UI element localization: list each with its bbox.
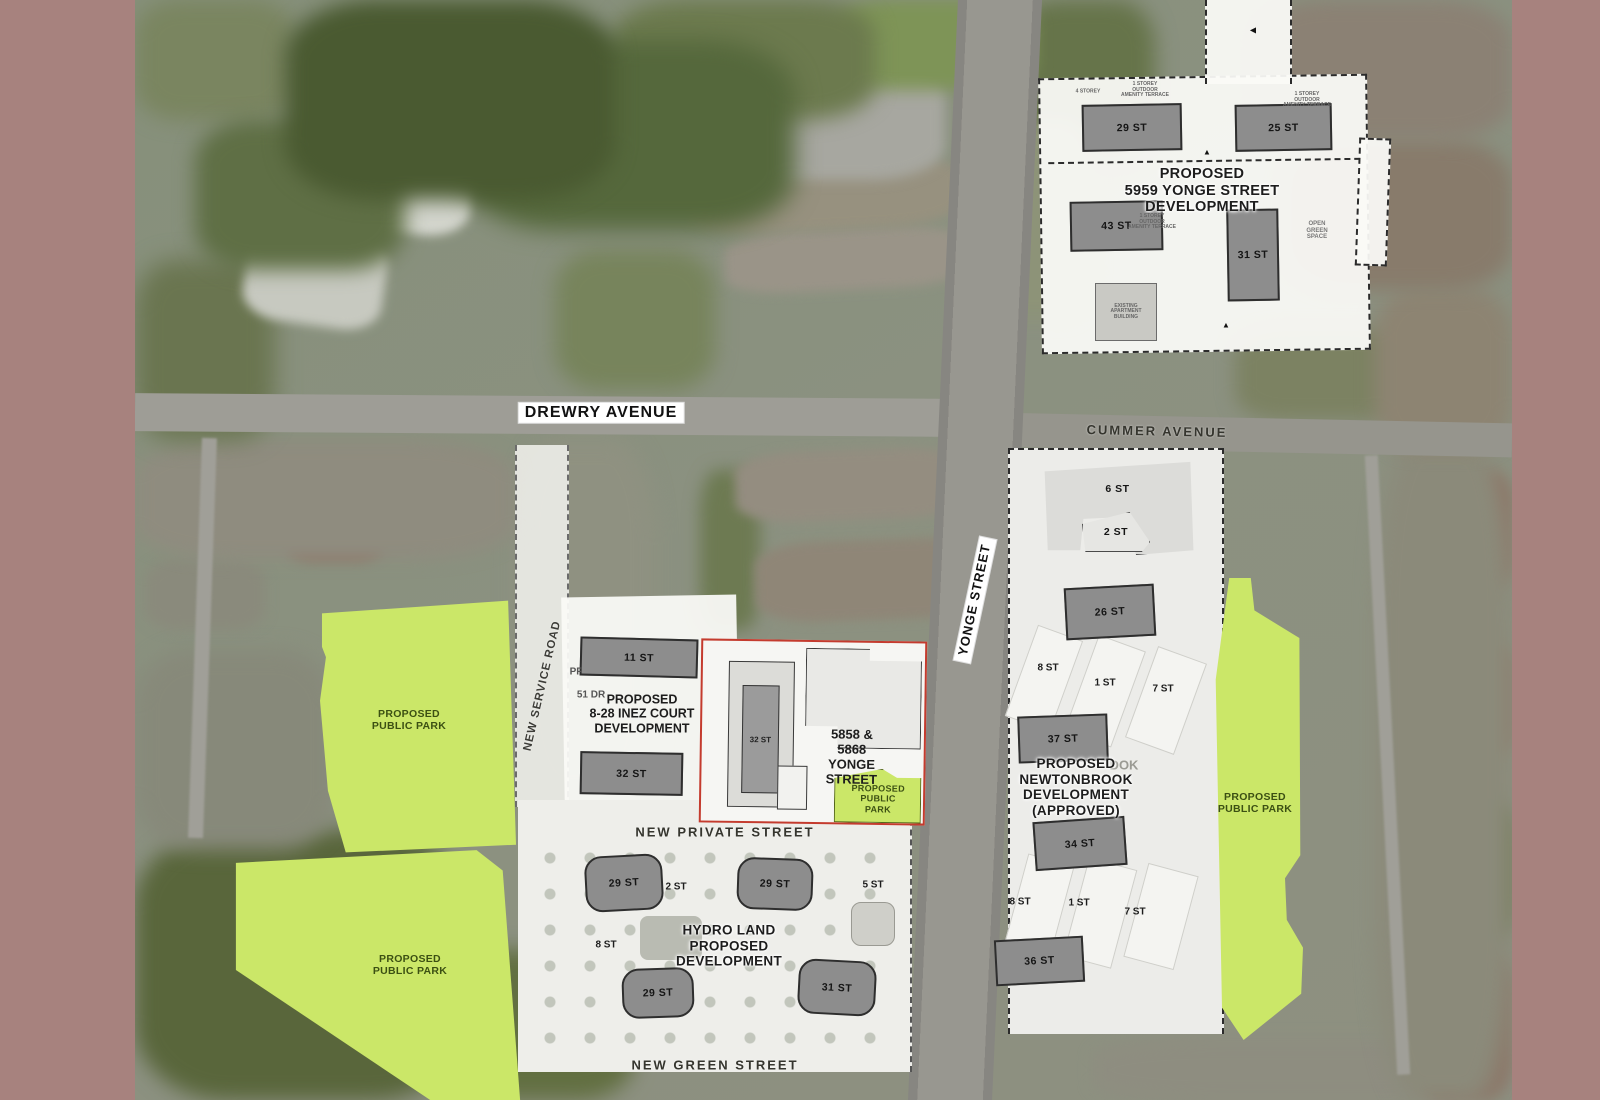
partial-label-51dr: 51 DR	[577, 689, 605, 701]
new-private-street-label: NEW PRIVATE STREET	[635, 826, 814, 841]
nb-label-1st-2: 1 ST	[1068, 897, 1089, 909]
aerial-photo: 11 ST 32 ST PROPOSED 8-28 INEZ COURT DEV…	[135, 0, 1512, 1100]
building-36st: 36 ST	[994, 936, 1085, 987]
aerial-patch	[555, 250, 715, 390]
building-label: 29 ST	[608, 876, 639, 890]
partial-label-pf: PF	[570, 666, 583, 678]
park-upper-left-label: PROPOSED PUBLIC PARK	[372, 708, 446, 732]
hydro-tower-31st: 31 ST	[797, 958, 878, 1017]
building-29st-5959: 29 ST	[1082, 103, 1183, 152]
building-label: 25 ST	[1268, 121, 1299, 134]
building-label: 29 ST	[643, 986, 674, 999]
existing-building-label: EXISTING APARTMENT BUILDING	[1110, 304, 1141, 321]
hydro-site-title: HYDRO LAND PROPOSED DEVELOPMENT	[676, 923, 782, 970]
site-5959-top-strip	[1205, 0, 1292, 84]
building-31st-5959: 31 ST	[1226, 209, 1280, 302]
terrace-label: 1 STOREY OUTDOOR AMENITY TERRACE	[1128, 214, 1176, 231]
nb-label-7st-2: 7 ST	[1124, 906, 1145, 918]
building-label: 6 ST	[1105, 483, 1129, 495]
building-25st-5959: 25 ST	[1235, 103, 1333, 152]
tower-32st: 32 ST	[741, 685, 780, 794]
park-onsite-label: PROPOSED PUBLIC PARK	[851, 783, 905, 815]
building-label: 29 ST	[1117, 121, 1148, 134]
nb-label-7st-1: 7 ST	[1152, 683, 1173, 695]
nb-label-8st-1: 8 ST	[1037, 662, 1058, 674]
building-label: 26 ST	[1094, 605, 1125, 619]
aerial-patch	[135, 0, 295, 120]
open-green-space-label: OPEN GREEN SPACE	[1306, 221, 1327, 241]
aerial-patch	[135, 440, 515, 560]
north-arrow: ◀	[1250, 26, 1256, 35]
inez-site-title: PROPOSED 8-28 INEZ COURT DEVELOPMENT	[590, 692, 695, 735]
building-32st-inez: 32 ST	[580, 751, 684, 796]
site-5959-right-bump	[1355, 137, 1391, 266]
terrace-label: 1 STOREY OUTDOOR AMENITY TERRACE	[1121, 82, 1169, 99]
aerial-patch	[285, 0, 615, 200]
site-5858-title: 5858 & 5868 YONGE STREET	[815, 727, 888, 788]
storey-label: 4 STOREY	[1076, 89, 1101, 95]
newtonbrook-site-title: PROPOSED NEWTONBROOK DEVELOPMENT (APPROV…	[1019, 756, 1132, 818]
development-map-page: { "map": { "streets": { "drewry": "DREWR…	[0, 0, 1600, 1100]
entrance-marker: ▲	[1203, 148, 1211, 157]
hydro-tower-29st-c: 29 ST	[621, 967, 695, 1019]
footprint-small	[777, 766, 808, 810]
existing-apartment-building: EXISTING APARTMENT BUILDING	[1095, 283, 1157, 341]
site-5959-title: PROPOSED 5959 YONGE STREET DEVELOPMENT	[1125, 166, 1280, 216]
building-34st: 34 ST	[1032, 816, 1127, 871]
park-right-label: PROPOSED PUBLIC PARK	[1218, 791, 1292, 815]
building-label: 2 ST	[1104, 526, 1128, 538]
drewry-avenue-label: DREWRY AVENUE	[519, 403, 684, 423]
building-label: 32 ST	[616, 767, 647, 780]
park-lower-left-label: PROPOSED PUBLIC PARK	[373, 953, 447, 977]
building-label: 11 ST	[624, 651, 654, 664]
building-label: 36 ST	[1024, 954, 1055, 968]
site-5959-divider	[1048, 158, 1360, 164]
nb-label-1st-1: 1 ST	[1094, 677, 1115, 689]
hydro-label-2st: 2 ST	[665, 881, 686, 893]
building-26st: 26 ST	[1064, 584, 1157, 641]
building-label: 29 ST	[760, 877, 791, 890]
hydro-garden	[851, 902, 895, 946]
site-5858-5868-yonge: 32 ST 5858 & 5868 YONGE STREET PROPOSED …	[699, 638, 928, 825]
building-label: 31 ST	[821, 981, 852, 995]
entrance-marker: ▲	[1222, 321, 1230, 330]
new-green-street-label: NEW GREEN STREET	[631, 1059, 798, 1074]
aerial-patch	[734, 446, 966, 524]
building-label: 37 ST	[1048, 732, 1079, 745]
aerial-patch	[135, 650, 335, 850]
hydro-tower-29st-a: 29 ST	[584, 853, 665, 913]
hydro-label-5st: 5 ST	[862, 879, 883, 891]
hydro-tower-29st-b: 29 ST	[736, 857, 814, 912]
hydro-label-8st: 8 ST	[595, 939, 616, 951]
terrace-label: 1 STOREY OUTDOOR AMENITY TERRACE	[1283, 92, 1331, 109]
nb-label-8st-2: 8 ST	[1009, 896, 1030, 908]
cummer-avenue-label: CUMMER AVENUE	[1086, 423, 1227, 441]
building-label: 31 ST	[1238, 249, 1269, 262]
building-11st: 11 ST	[580, 636, 699, 678]
aerial-patch	[724, 224, 967, 296]
building-label: 34 ST	[1064, 836, 1095, 850]
tower-label: 32 ST	[750, 735, 771, 744]
